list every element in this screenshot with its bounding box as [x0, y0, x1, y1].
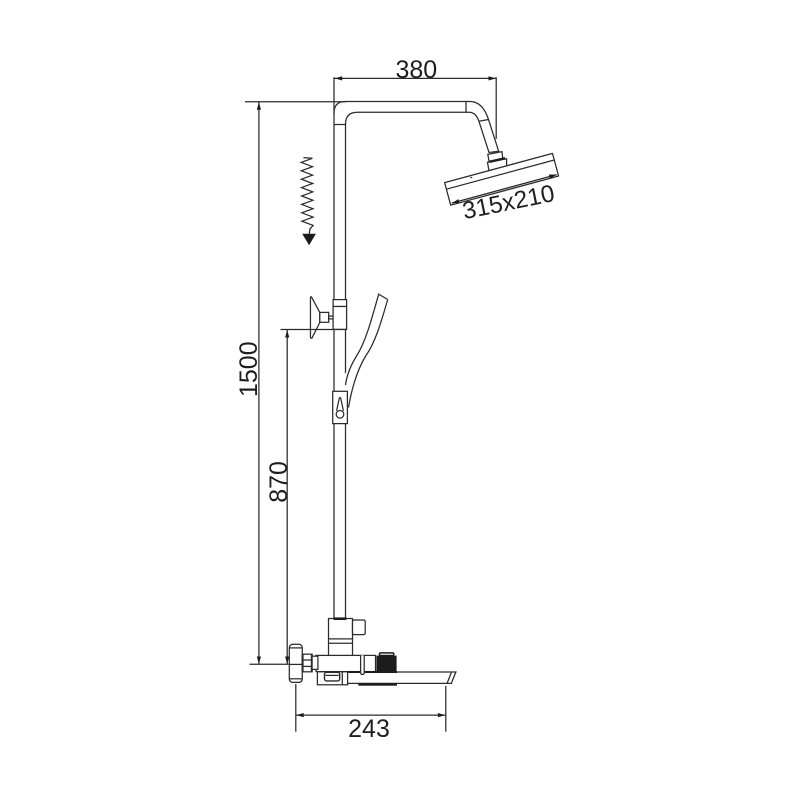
- svg-text:380: 380: [395, 56, 437, 84]
- svg-text:243: 243: [348, 715, 390, 743]
- svg-text:870: 870: [265, 461, 293, 503]
- svg-text:1500: 1500: [235, 341, 263, 397]
